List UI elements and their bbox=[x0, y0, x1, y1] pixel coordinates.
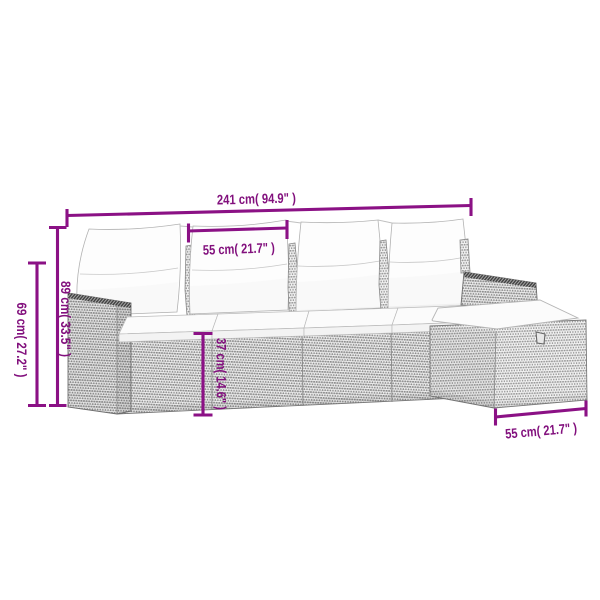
svg-text:37 cm( 14.6" ): 37 cm( 14.6" ) bbox=[214, 338, 229, 410]
svg-text:241 cm( 94.9" ): 241 cm( 94.9" ) bbox=[217, 190, 296, 207]
svg-text:89 cm( 33.5" ): 89 cm( 33.5" ) bbox=[58, 281, 73, 357]
svg-text:69 cm( 27.2" ): 69 cm( 27.2" ) bbox=[14, 303, 29, 378]
svg-text:55 cm( 21.7" ): 55 cm( 21.7" ) bbox=[203, 240, 275, 258]
